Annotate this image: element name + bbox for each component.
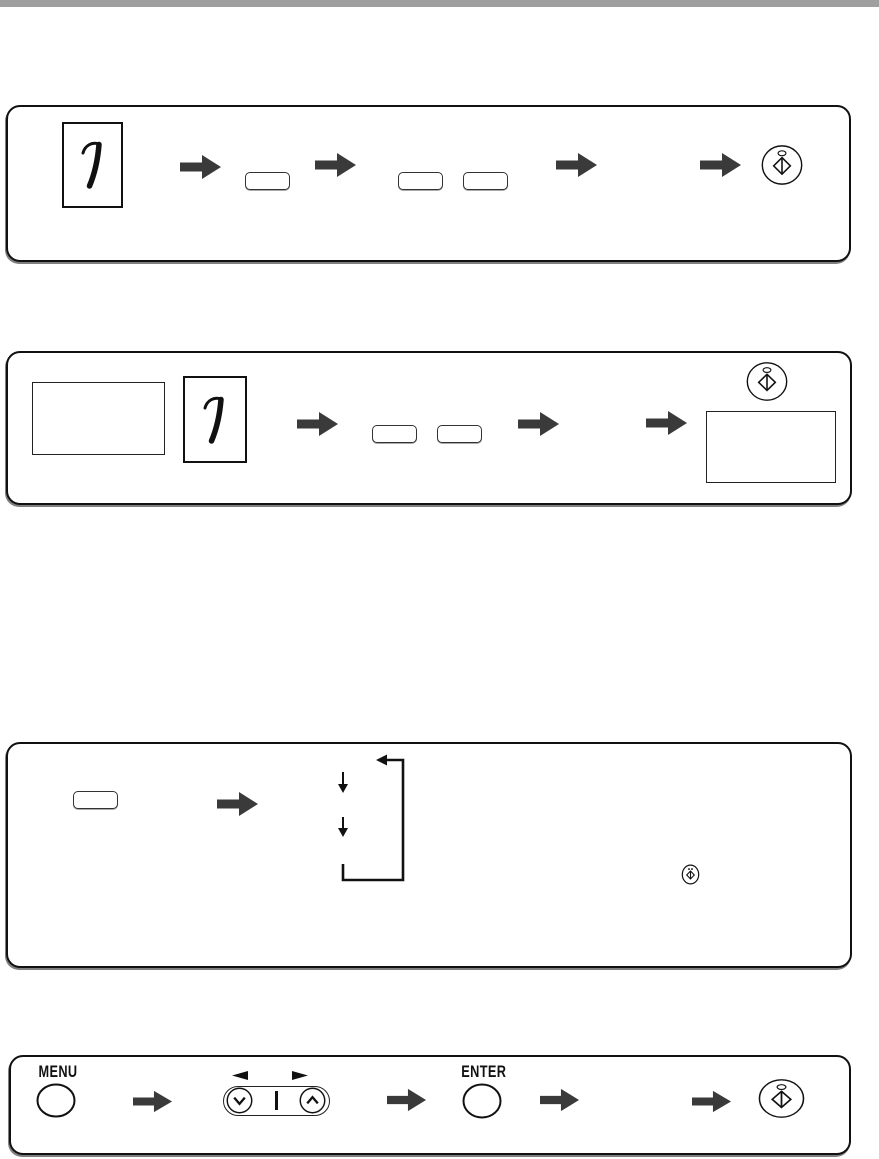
menu-button-label: MENU (37, 1064, 79, 1080)
panel-key-button[interactable] (437, 425, 482, 443)
left-arrowhead-icon (376, 755, 387, 766)
right-block-arrow-icon (180, 154, 222, 180)
scroll-down-button[interactable] (226, 1087, 253, 1114)
right-block-arrow-icon (133, 1090, 173, 1113)
page-top-bar (0, 0, 879, 7)
panel-key-button[interactable] (245, 172, 290, 190)
platen-glass-box (32, 382, 165, 455)
flow-panel-1: 1 (6, 105, 851, 262)
panel-key-button[interactable] (372, 425, 417, 443)
start-button[interactable] (758, 1079, 805, 1118)
start-button[interactable] (761, 145, 803, 185)
right-block-arrow-icon (540, 1088, 580, 1112)
down-arrow-icon (338, 784, 348, 793)
original-page-icon: 1 (62, 122, 123, 208)
flow-panel-2: 1 (6, 351, 852, 505)
right-block-arrow-icon (297, 411, 339, 437)
right-block-arrow-icon (700, 152, 742, 178)
scroll-up-button[interactable] (299, 1087, 326, 1114)
right-block-arrow-icon (556, 152, 598, 178)
left-triangle-icon (232, 1071, 248, 1080)
panel-key-button[interactable] (73, 791, 118, 809)
start-button-small[interactable] (681, 864, 700, 885)
right-triangle-icon (292, 1071, 308, 1080)
enter-button-label: ENTER (461, 1064, 505, 1080)
right-block-arrow-icon (387, 1088, 427, 1112)
menu-button[interactable] (36, 1083, 76, 1118)
original-page-icon: 1 (183, 376, 247, 463)
output-display-box (706, 411, 836, 483)
cycle-loop-arrows (335, 750, 410, 885)
right-block-arrow-icon (646, 410, 688, 436)
manual-page: 1 1 (0, 0, 879, 1159)
panel-key-button[interactable] (463, 172, 508, 190)
flow-panel-4: MENU ENTER (9, 1055, 851, 1155)
right-block-arrow-icon (315, 152, 357, 178)
right-block-arrow-icon (692, 1090, 732, 1113)
panel-key-button[interactable] (398, 172, 443, 190)
start-button[interactable] (746, 362, 788, 401)
right-block-arrow-icon (217, 791, 259, 817)
right-block-arrow-icon (518, 411, 560, 437)
scroll-selector (223, 1086, 330, 1116)
flow-panel-3 (6, 742, 852, 968)
down-arrow-icon (338, 828, 348, 837)
enter-button[interactable] (462, 1083, 502, 1119)
selector-divider (275, 1091, 278, 1110)
